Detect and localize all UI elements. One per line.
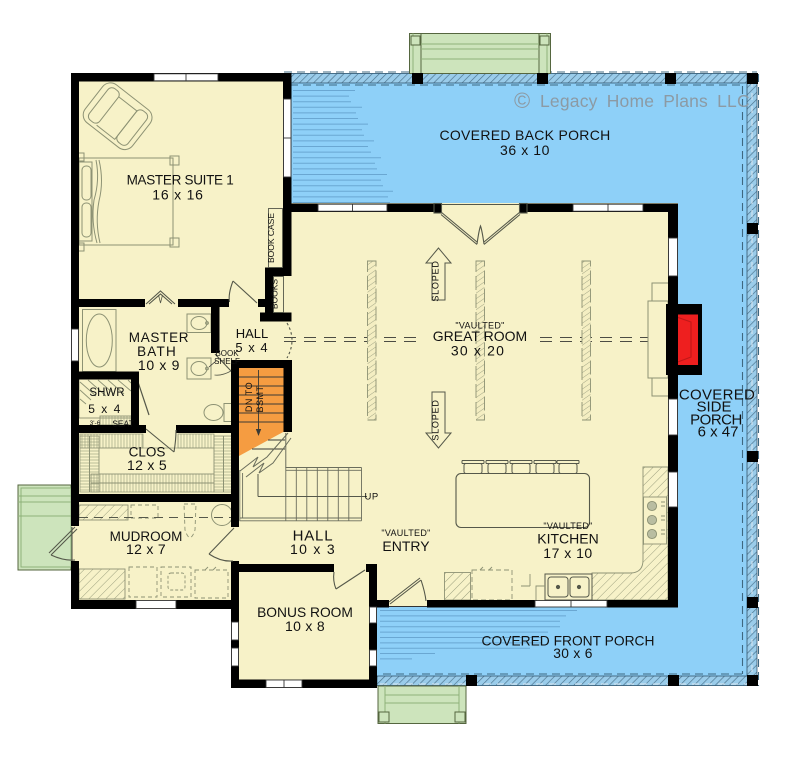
svg-text:5 x 4: 5 x 4: [88, 402, 122, 416]
svg-text:12 x 7: 12 x 7: [126, 541, 166, 557]
svg-text:"VAULTED": "VAULTED": [381, 528, 430, 538]
svg-text:36 x 10: 36 x 10: [500, 142, 550, 158]
svg-text:17 x 10: 17 x 10: [543, 545, 592, 561]
svg-text:Legacy Home Plans LLC: Legacy Home Plans LLC: [540, 91, 750, 111]
svg-text:10 x 8: 10 x 8: [285, 618, 325, 634]
svg-text:30 x 6: 30 x 6: [553, 646, 592, 661]
svg-text:BOOK CASE: BOOK CASE: [266, 213, 276, 263]
svg-text:10 x 9: 10 x 9: [138, 357, 180, 373]
svg-text:MASTER: MASTER: [129, 330, 189, 345]
svg-text:HALL: HALL: [236, 326, 269, 341]
svg-text:MASTER SUITE 1: MASTER SUITE 1: [127, 173, 234, 188]
svg-text:SHELF: SHELF: [214, 357, 240, 366]
svg-text:10 x 3: 10 x 3: [290, 541, 336, 557]
svg-text:BOOKS: BOOKS: [270, 279, 280, 310]
svg-text:SLOPED: SLOPED: [431, 260, 441, 301]
svg-text:SEAT: SEAT: [112, 419, 134, 429]
svg-text:ENTRY: ENTRY: [382, 538, 430, 554]
svg-text:©: ©: [514, 88, 530, 113]
svg-text:BSMT: BSMT: [255, 385, 265, 412]
svg-text:5 x 4: 5 x 4: [235, 340, 268, 355]
svg-text:DN TO: DN TO: [244, 382, 254, 412]
svg-text:SHWR: SHWR: [89, 387, 124, 399]
svg-text:"VAULTED": "VAULTED": [543, 521, 592, 531]
svg-text:6 x 47: 6 x 47: [698, 424, 739, 441]
svg-text:UP: UP: [365, 492, 379, 503]
svg-text:3'-6: 3'-6: [90, 420, 101, 427]
svg-text:SLOPED: SLOPED: [431, 399, 441, 440]
svg-text:12 x 5: 12 x 5: [127, 457, 167, 473]
svg-text:30 x 20: 30 x 20: [451, 343, 505, 359]
svg-text:16 x 16: 16 x 16: [152, 187, 204, 203]
svg-text:COVERED BACK PORCH: COVERED BACK PORCH: [439, 127, 610, 143]
